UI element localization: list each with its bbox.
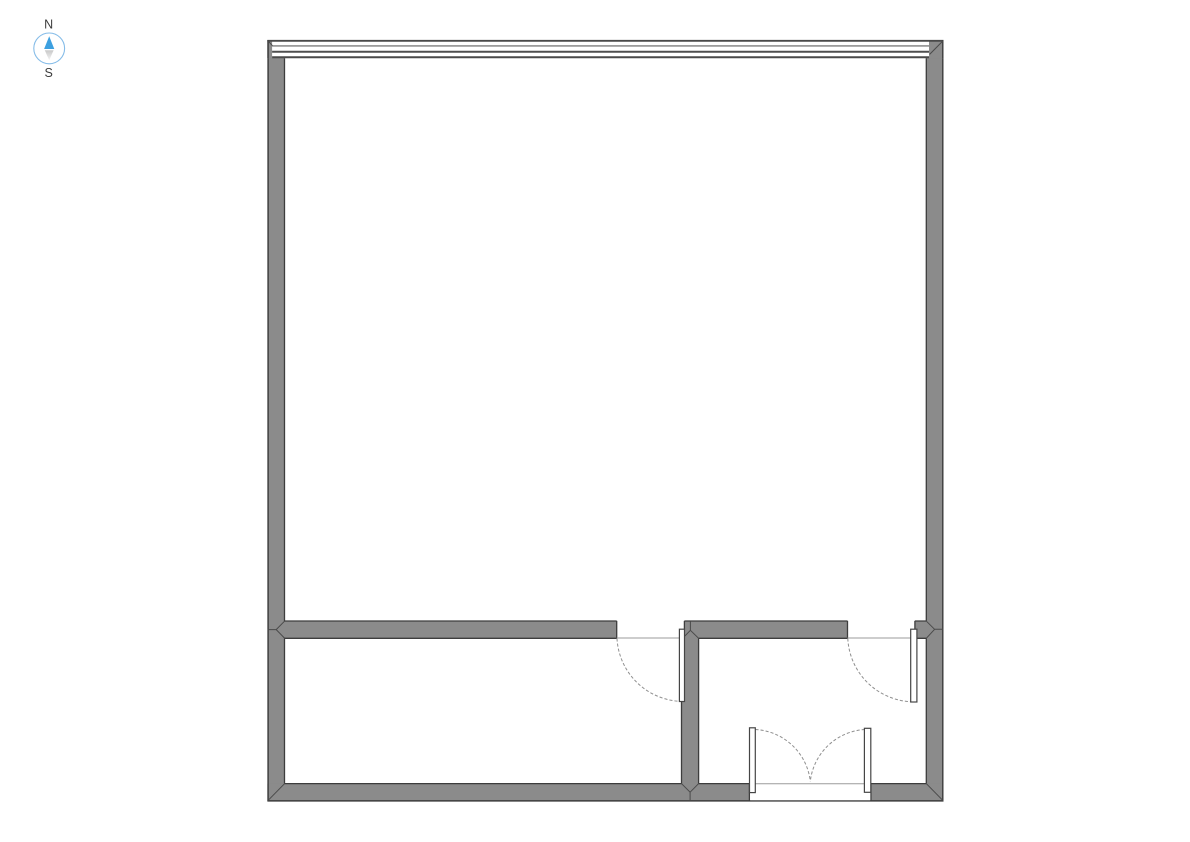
svg-text:N: N <box>44 17 53 31</box>
svg-text:S: S <box>45 66 53 80</box>
